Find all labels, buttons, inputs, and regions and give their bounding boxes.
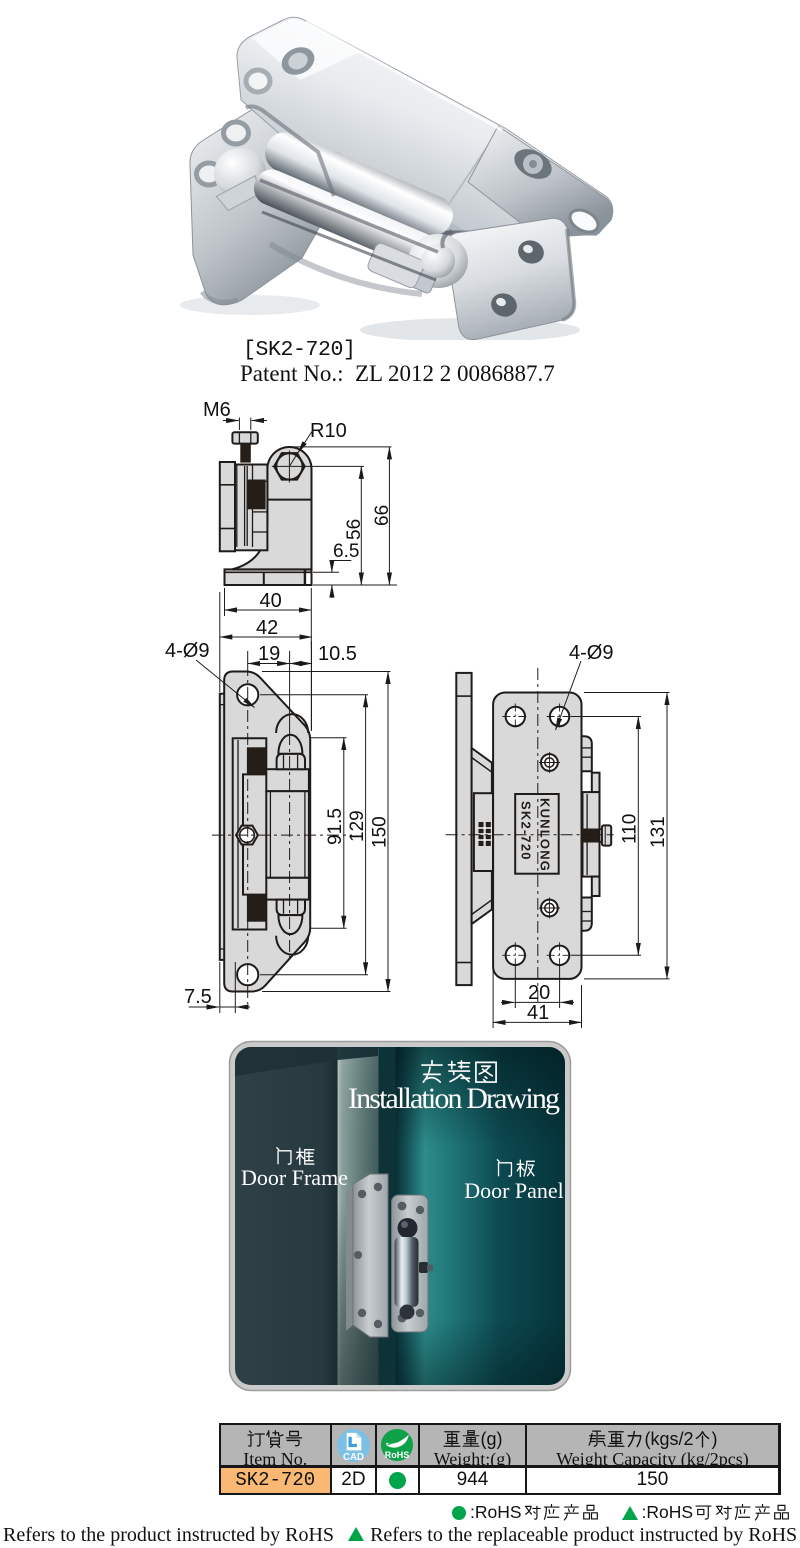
svg-text:150: 150 bbox=[370, 816, 391, 848]
svg-text:10.5: 10.5 bbox=[318, 643, 357, 665]
svg-text:19: 19 bbox=[258, 643, 280, 665]
svg-text:41: 41 bbox=[527, 1002, 549, 1024]
svg-text:R10: R10 bbox=[310, 420, 347, 442]
svg-text:91.5: 91.5 bbox=[325, 808, 346, 845]
svg-text:SK2-720: SK2-720 bbox=[519, 801, 534, 861]
svg-text:56: 56 bbox=[344, 519, 365, 540]
svg-text:6.5: 6.5 bbox=[333, 541, 359, 562]
svg-text:110: 110 bbox=[620, 814, 641, 844]
svg-text:66: 66 bbox=[372, 505, 393, 526]
svg-text:Installation Drawing: Installation Drawing bbox=[348, 1082, 560, 1115]
svg-text:4-Ø9: 4-Ø9 bbox=[165, 640, 209, 662]
svg-text:7.5: 7.5 bbox=[184, 986, 212, 1008]
svg-text:129: 129 bbox=[347, 810, 368, 842]
svg-text:CAD: CAD bbox=[343, 1452, 364, 1463]
svg-text:4-Ø9: 4-Ø9 bbox=[569, 642, 613, 664]
svg-text:131: 131 bbox=[648, 816, 669, 848]
svg-text:RoHS: RoHS bbox=[385, 1450, 409, 1460]
svg-text:42: 42 bbox=[256, 617, 278, 639]
svg-text:Door Panel: Door Panel bbox=[464, 1178, 564, 1203]
svg-text:40: 40 bbox=[260, 590, 282, 612]
svg-text:M6: M6 bbox=[203, 399, 231, 421]
svg-text:20: 20 bbox=[528, 982, 550, 1004]
svg-text:Door Frame: Door Frame bbox=[241, 1165, 348, 1190]
